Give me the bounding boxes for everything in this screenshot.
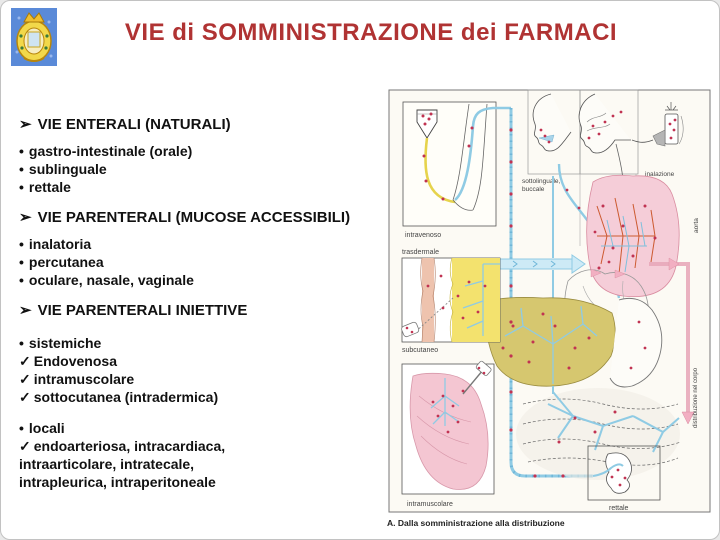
- check-text: sottocutanea (intradermica): [34, 389, 218, 405]
- label-distribuzione: distribuzione nel corpo: [693, 367, 699, 428]
- slide: VIE di SOMMINISTRAZIONE dei FARMACI ➢VIE…: [0, 0, 720, 540]
- check-text: Endovenosa: [34, 353, 117, 369]
- group-label-text: sistemiche: [29, 335, 101, 351]
- check-icon: ✓: [19, 438, 31, 454]
- bullet-text: gastro-intestinale (orale): [29, 143, 192, 159]
- dot-bullet-icon: •: [19, 420, 24, 436]
- administration-diagram: intravenoso sottolinguale,: [383, 86, 715, 539]
- dot-bullet-icon: •: [19, 161, 24, 177]
- intramuscolare-inset: [402, 360, 494, 494]
- dot-bullet-icon: •: [19, 143, 24, 159]
- group-label-text: locali: [29, 420, 65, 436]
- diagram-figure: intravenoso sottolinguale,: [383, 86, 715, 534]
- check-item: ✓sottocutanea (intradermica): [19, 388, 387, 406]
- section-heading-parenterali-iniettive: ➢VIE PARENTERALI INIETTIVE: [19, 301, 387, 320]
- bullet-item: •oculare, nasale, vaginale: [19, 271, 387, 289]
- label-subcutaneo: subcutaneo: [402, 347, 438, 354]
- label-intramuscolare: intramuscolare: [407, 501, 453, 508]
- trasdermale-inset: [401, 258, 500, 342]
- check-item: ✓Endovenosa: [19, 352, 387, 370]
- dot-bullet-icon: •: [19, 236, 24, 252]
- bullet-text: sublinguale: [29, 161, 107, 177]
- heading-text: VIE ENTERALI (NATURALI): [38, 116, 231, 133]
- label-rettale: rettale: [609, 505, 629, 512]
- label-intravenoso: intravenoso: [405, 232, 441, 239]
- figure-caption: A. Dalla somministrazione alla distribuz…: [387, 518, 565, 528]
- check-item-locali: ✓endoarteriosa, intracardiaca, intraarti…: [19, 437, 254, 491]
- check-text: intramuscolare: [34, 371, 134, 387]
- dot-bullet-icon: •: [19, 179, 24, 195]
- bullet-text: percutanea: [29, 254, 104, 270]
- bullet-text: inalatoria: [29, 236, 91, 252]
- heading-text: VIE PARENTERALI INIETTIVE: [38, 302, 248, 319]
- bullet-text: rettale: [29, 179, 71, 195]
- section-heading-enterali: ➢VIE ENTERALI (NATURALI): [19, 115, 387, 134]
- label-buccale: buccale: [522, 186, 545, 193]
- dot-bullet-icon: •: [19, 335, 24, 351]
- intravenoso-inset: [403, 102, 511, 226]
- bullet-item: •percutanea: [19, 253, 387, 271]
- bullet-item: •rettale: [19, 178, 387, 196]
- section-heading-parenterali-mucose: ➢VIE PARENTERALI (MUCOSE ACCESSIBILI): [19, 208, 387, 227]
- dot-bullet-icon: •: [19, 254, 24, 270]
- arrow-bullet-icon: ➢: [19, 116, 32, 133]
- check-item: ✓intramuscolare: [19, 370, 387, 388]
- check-icon: ✓: [19, 371, 31, 387]
- bullet-item: •gastro-intestinale (orale): [19, 142, 387, 160]
- bullet-item: •sublinguale: [19, 160, 387, 178]
- arrow-bullet-icon: ➢: [19, 209, 32, 226]
- label-trasdermale: trasdermale: [402, 249, 439, 256]
- check-icon: ✓: [19, 389, 31, 405]
- group-label-sistemiche: •sistemiche: [19, 334, 387, 352]
- group-label-locali: •locali: [19, 419, 387, 437]
- check-icon: ✓: [19, 353, 31, 369]
- lungs: [587, 175, 680, 296]
- bullet-item: •inalatoria: [19, 235, 387, 253]
- university-crest-logo: [11, 8, 57, 71]
- arrow-bullet-icon: ➢: [19, 302, 32, 319]
- slide-title: VIE di SOMMINISTRAZIONE dei FARMACI: [91, 19, 651, 47]
- label-aorta: aorta: [693, 218, 700, 233]
- bullet-text: oculare, nasale, vaginale: [29, 272, 194, 288]
- outline: ➢VIE ENTERALI (NATURALI) •gastro-intesti…: [19, 115, 387, 491]
- heading-text: VIE PARENTERALI (MUCOSE ACCESSIBILI): [38, 209, 351, 226]
- crest-icon: [11, 8, 57, 66]
- check-text: endoarteriosa, intracardiaca, intraartic…: [19, 438, 225, 490]
- dot-bullet-icon: •: [19, 272, 24, 288]
- label-sottolinguale: sottolinguale,: [522, 178, 560, 185]
